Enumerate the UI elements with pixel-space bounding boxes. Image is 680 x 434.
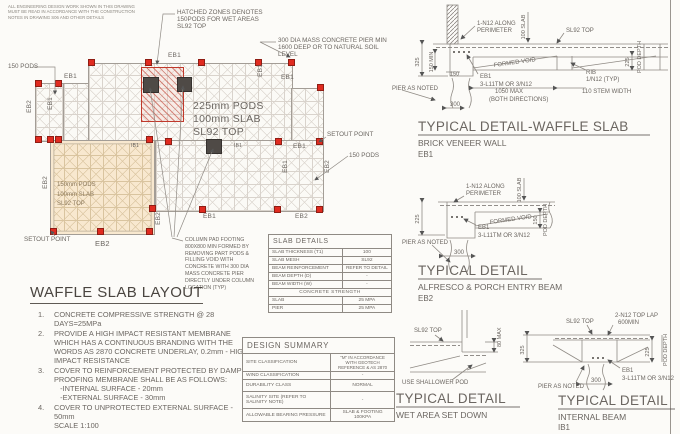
- table-cell: "M" IN ACCORDANCE WITH GEOTECH REFERENCE…: [331, 354, 395, 372]
- slab-details-table: SLAB DETAILS SLAB THICKNESS (T1)100 SLAB…: [268, 234, 392, 313]
- table-cell: SITE CLASSIFICATION: [243, 354, 331, 372]
- table-cell: -: [331, 392, 395, 409]
- detail-dim: 325: [520, 345, 526, 354]
- detail-dim: POD DEPTH: [543, 204, 549, 236]
- formed-void-label: FORMED VOID: [493, 57, 536, 69]
- detail-label: PERIMETER: [466, 191, 502, 197]
- note-text: PROVIDE A HIGH IMPACT RESISTANT MEMBRANE…: [54, 329, 254, 365]
- note-item: 1. CONCRETE COMPRESSIVE STRENGTH @ 28 DA…: [38, 310, 254, 328]
- typical-detail-wet-area: SL92 TOP USE SHALLOWER POD 80 MAX TYPICA…: [390, 308, 530, 434]
- detail-label: SL92 TOP: [414, 328, 442, 334]
- table-cell: 100: [342, 249, 391, 257]
- table-cell: REFER TO DETAIL: [342, 265, 391, 273]
- detail-label: SL92 TOP: [566, 28, 594, 34]
- detail-dim: 325: [415, 57, 421, 66]
- note-number: 1.: [38, 310, 54, 328]
- detail-dim: 110 STEM WIDTH: [582, 89, 631, 95]
- table-cell: SLAB & FOOTING 100kPa: [331, 409, 395, 422]
- typical-detail-alfresco: 1-N12 ALONG PERIMETER FORMED VOID EB1 3-…: [390, 170, 675, 305]
- detail-label: PIER AS NOTED: [538, 384, 585, 390]
- table-cell: BEAM WIDTH (W): [269, 281, 343, 289]
- detail-subtitle: ALFRESCO & PORCH ENTRY BEAM: [418, 282, 562, 292]
- detail-dim: 1050 MAX: [495, 89, 523, 95]
- detail-label: USE SHALLOWER POD: [402, 380, 469, 386]
- detail-dim: 300: [591, 378, 602, 384]
- note-number: 2.: [38, 329, 54, 365]
- detail-dim: 100 SLAB: [521, 14, 527, 39]
- table-cell: PIER: [269, 305, 343, 313]
- detail-title: TYPICAL DETAIL-WAFFLE SLAB: [418, 119, 629, 134]
- table-cell: SL92: [342, 257, 391, 265]
- note-item: 2. PROVIDE A HIGH IMPACT RESISTANT MEMBR…: [38, 329, 254, 365]
- table-cell: -: [342, 281, 391, 289]
- detail-dim: 150 MIN: [429, 52, 435, 73]
- detail-label: 600MIN: [618, 320, 639, 326]
- detail-label: 3-L11TM OR 3/N12: [478, 233, 531, 239]
- waffle-slab-notes: 1. CONCRETE COMPRESSIVE STRENGTH @ 28 DA…: [38, 310, 254, 431]
- detail-title: TYPICAL DETAIL: [558, 393, 668, 408]
- detail-label: 1-N12 ALONG: [466, 184, 505, 190]
- typical-detail-waffle-slab: 1-N12 ALONG PERIMETER SL92 TOP FORMED VO…: [390, 0, 675, 168]
- slab-details-title: SLAB DETAILS: [269, 235, 392, 249]
- detail-ref: EB2: [418, 294, 434, 303]
- table-cell: SLAB THICKNESS (T1): [269, 249, 343, 257]
- detail-label: PERIMETER: [477, 28, 513, 34]
- detail-title: TYPICAL DETAIL: [396, 391, 506, 406]
- table-cell: DURABILITY CLASS: [243, 380, 331, 392]
- table-cell: NORMAL: [331, 380, 395, 392]
- detail-label: PIER AS NOTED: [392, 86, 439, 92]
- table-cell: SLAB MESH: [269, 257, 343, 265]
- table-cell: -: [331, 372, 395, 380]
- table-cell: ALLOWABLE BEARING PRESSURE: [243, 409, 331, 422]
- detail-dim: 225: [645, 347, 651, 356]
- design-summary-table: DESIGN SUMMARY SITE CLASSIFICATION"M" IN…: [242, 337, 395, 422]
- note-number: 4.: [38, 403, 54, 430]
- detail-label: EB1: [480, 74, 492, 80]
- detail-dim: 225: [415, 214, 421, 223]
- detail-subtitle: INTERNAL BEAM: [558, 412, 626, 422]
- table-cell: BEAM REINFORCEMENT: [269, 265, 343, 273]
- detail-label: EB1: [622, 368, 634, 374]
- detail-subtitle: BRICK VENEER WALL: [418, 138, 507, 148]
- detail-label: SL92 TOP: [566, 319, 594, 325]
- design-summary-title: DESIGN SUMMARY: [243, 338, 395, 354]
- table-cell: SALINITY SITE (REFER TO SALINITY NOTE): [243, 392, 331, 409]
- detail-dim: 80 MAX: [497, 327, 503, 347]
- detail-dim: (BOTH DIRECTIONS): [489, 97, 548, 103]
- table-cell: BEAM DEPTH (D): [269, 273, 343, 281]
- detail-dim: 300: [454, 250, 465, 256]
- detail-dim: 300: [450, 102, 461, 108]
- detail-label: RIB: [586, 70, 596, 76]
- detail-dim: 225: [625, 57, 631, 66]
- note-item: 4. COVER TO UNPROTECTED EXTERNAL SURFACE…: [38, 403, 254, 430]
- note-text: COVER TO REINFORCEMENT PROTECTED BY DAMP…: [54, 366, 254, 402]
- detail-dim: POD DEPTH: [663, 334, 669, 366]
- detail-title: TYPICAL DETAIL: [418, 263, 528, 278]
- detail-label: 1/N12 (TYP): [586, 77, 619, 83]
- note-text: COVER TO UNPROTECTED EXTERNAL SURFACE - …: [54, 403, 254, 430]
- detail-dim: 150: [450, 72, 459, 78]
- detail-subtitle: WET AREA SET DOWN: [396, 410, 487, 420]
- note-number: 3.: [38, 366, 54, 402]
- detail-ref: EB1: [418, 150, 434, 159]
- detail-dim: 150: [533, 215, 539, 224]
- notes-title: WAFFLE SLAB LAYOUT: [30, 284, 203, 304]
- detail-label: PIER AS NOTED: [402, 240, 449, 246]
- detail-label: 2-N12 TOP LAP: [615, 313, 658, 319]
- table-cell: -: [342, 273, 391, 281]
- detail-dim: POD DEPTH: [637, 41, 643, 73]
- table-cell: WIND CLASSIFICATION: [243, 372, 331, 380]
- detail-label: 3-L11TM OR 3/N12: [622, 376, 675, 382]
- note-item: 3. COVER TO REINFORCEMENT PROTECTED BY D…: [38, 366, 254, 402]
- concrete-strength-header: CONCRETE STRENGTH: [269, 289, 392, 297]
- detail-ref: IB1: [558, 423, 571, 432]
- detail-label: 1-N12 ALONG: [477, 21, 516, 27]
- table-cell: 25 MPa: [342, 297, 391, 305]
- table-cell: 25 MPa: [342, 305, 391, 313]
- formed-void-label: FORMED VOID: [489, 214, 532, 226]
- typical-detail-internal-beam: SL92 TOP 2-N12 TOP LAP 600MIN EB1 3-L11T…: [520, 308, 680, 434]
- detail-label: 3-L11TM OR 3/N12: [480, 82, 533, 88]
- detail-dim: 100 SLAB: [517, 177, 523, 202]
- table-cell: SLAB: [269, 297, 343, 305]
- note-text: CONCRETE COMPRESSIVE STRENGTH @ 28 DAYS=…: [54, 310, 254, 328]
- detail-label: EB1: [478, 225, 490, 231]
